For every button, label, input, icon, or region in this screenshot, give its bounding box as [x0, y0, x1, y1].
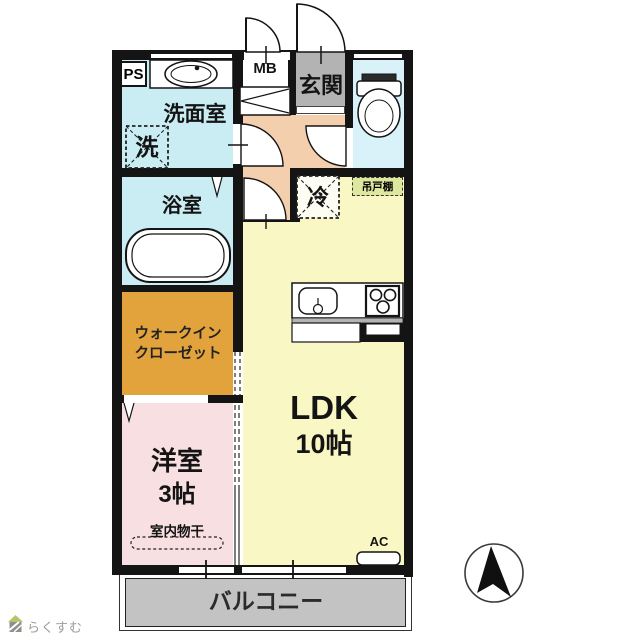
- stove: [366, 286, 399, 316]
- wic-sliding-door: [235, 352, 240, 395]
- toilet-fixture: [357, 74, 401, 137]
- mb-cabinet: [240, 87, 290, 115]
- fridge-label: 冷: [303, 186, 333, 209]
- washroom-door-swing: [228, 124, 283, 166]
- indoor-drying-label: 室内物干: [127, 525, 227, 539]
- mb-label: MB: [244, 61, 286, 77]
- logo-text: らくすむ: [27, 617, 83, 636]
- hanging-cupboard-box: 吊戸棚: [352, 177, 403, 196]
- ac-unit-box: [357, 552, 400, 565]
- washroom-label: 洗面室: [145, 104, 245, 126]
- bathtub: [126, 229, 230, 282]
- ps-label: PS: [123, 66, 143, 83]
- ps-box: PS: [120, 61, 147, 87]
- sink-vanity: [150, 60, 233, 88]
- ldk-label: LDK: [264, 391, 384, 426]
- bedroom-label: 洋室: [127, 448, 227, 475]
- wic-label-line1: ウォークイン: [123, 327, 233, 342]
- entrance-label: 玄関: [292, 74, 350, 97]
- bedroom-size-label: 3帖: [127, 482, 227, 507]
- balcony-label: バルコニー: [166, 589, 366, 613]
- logo-house-icon: [8, 615, 23, 632]
- floorplan-canvas: PS MB 玄関 洗面室 洗 浴室 冷 吊戸棚 ウォークイン クローゼット LD…: [0, 0, 640, 640]
- mb-door-swing: [246, 18, 280, 64]
- wic-label-line2: クローゼット: [123, 347, 233, 362]
- bedroom-sliding-door: [235, 405, 239, 565]
- bathroom-label: 浴室: [142, 196, 222, 217]
- toilet-door-swing: [306, 126, 346, 166]
- ac-label: AC: [359, 535, 399, 549]
- north-compass-icon: [465, 544, 523, 602]
- entrance-door-swing: [297, 4, 345, 64]
- washer-label: 洗: [132, 135, 162, 159]
- ldk-door-swing: [243, 178, 290, 229]
- wic-door-mark: [124, 403, 134, 421]
- hanging-cupboard-label: 吊戸棚: [362, 179, 394, 194]
- bathroom-door-mark: [212, 177, 222, 196]
- window-ticks: [206, 560, 293, 579]
- ldk-size-label: 10帖: [264, 430, 384, 458]
